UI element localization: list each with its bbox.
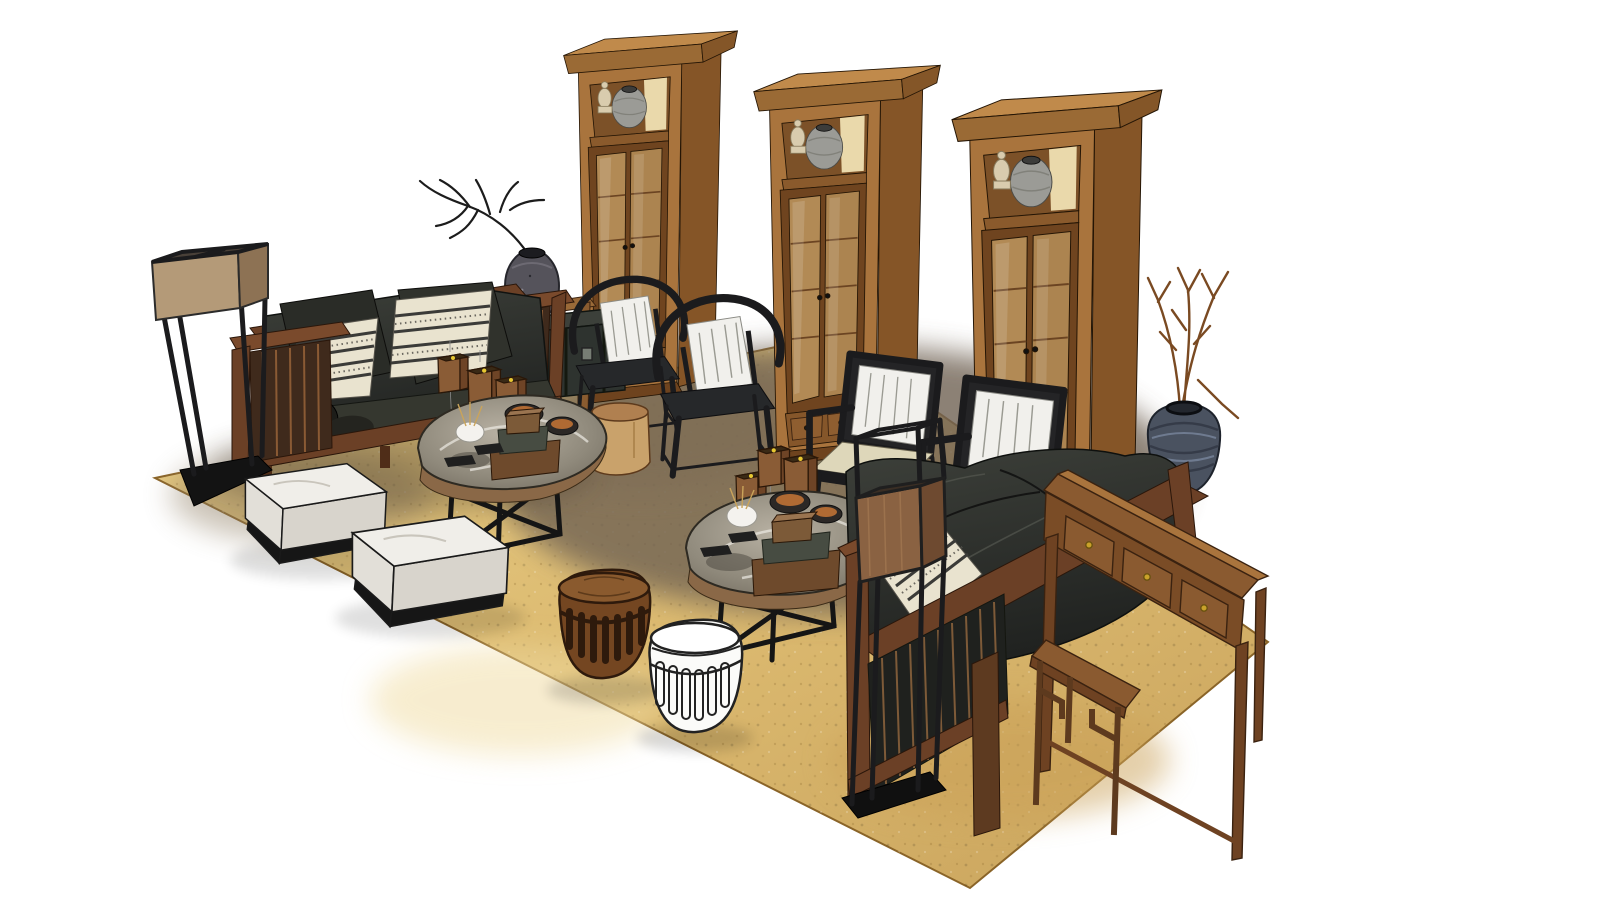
lamp-shade	[856, 486, 922, 582]
barrel-stool-white	[637, 620, 753, 752]
furniture-scene-render	[0, 0, 1600, 901]
barrel-stool-wood	[547, 570, 663, 704]
scene-canvas	[0, 0, 1600, 901]
